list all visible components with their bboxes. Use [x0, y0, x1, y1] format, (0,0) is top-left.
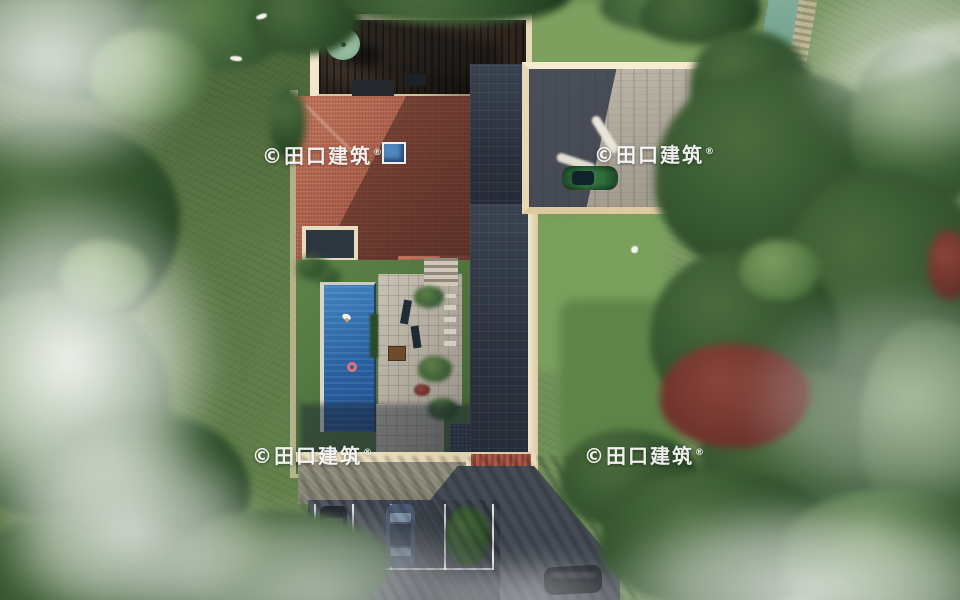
watermark-text: ©田口建筑	[594, 143, 704, 167]
pool-ring-float	[347, 362, 357, 372]
flat-roof-east	[470, 64, 530, 210]
skylight	[382, 142, 406, 164]
swimmer	[345, 318, 349, 322]
rooftop-equipment	[352, 80, 394, 96]
watermark: ©田口建筑®	[262, 140, 382, 169]
watermark-text: ©田口建筑	[584, 444, 694, 468]
watermark: ©田口建筑®	[594, 139, 714, 168]
watermark-reg-mark: ®	[705, 147, 714, 157]
green-car-windows	[572, 171, 594, 185]
white-bird-on-lawn	[631, 246, 638, 253]
rooftop-equipment-small	[404, 74, 426, 86]
watermark-reg-mark: ®	[363, 448, 372, 458]
side-courtyard	[470, 204, 528, 476]
entry-steps	[424, 258, 458, 286]
aerial-villa-rendering: ©田口建筑® ©田口建筑® ©田口建筑® ©田口建筑®	[0, 0, 960, 600]
red-plant	[414, 384, 430, 396]
watermark: ©田口建筑®	[252, 440, 372, 469]
garden-shrub	[414, 286, 444, 308]
east-wall	[528, 204, 538, 476]
watermark-text: ©田口建筑	[262, 144, 372, 168]
watermark-reg-mark: ®	[695, 448, 704, 458]
watermark-reg-mark: ®	[373, 148, 382, 158]
stepping-stones	[444, 294, 456, 346]
hedge	[370, 314, 378, 358]
garden-shrub	[418, 356, 452, 382]
watermark: ©田口建筑®	[584, 440, 704, 469]
watermark-text: ©田口建筑	[252, 444, 362, 468]
wooden-table	[388, 346, 406, 361]
